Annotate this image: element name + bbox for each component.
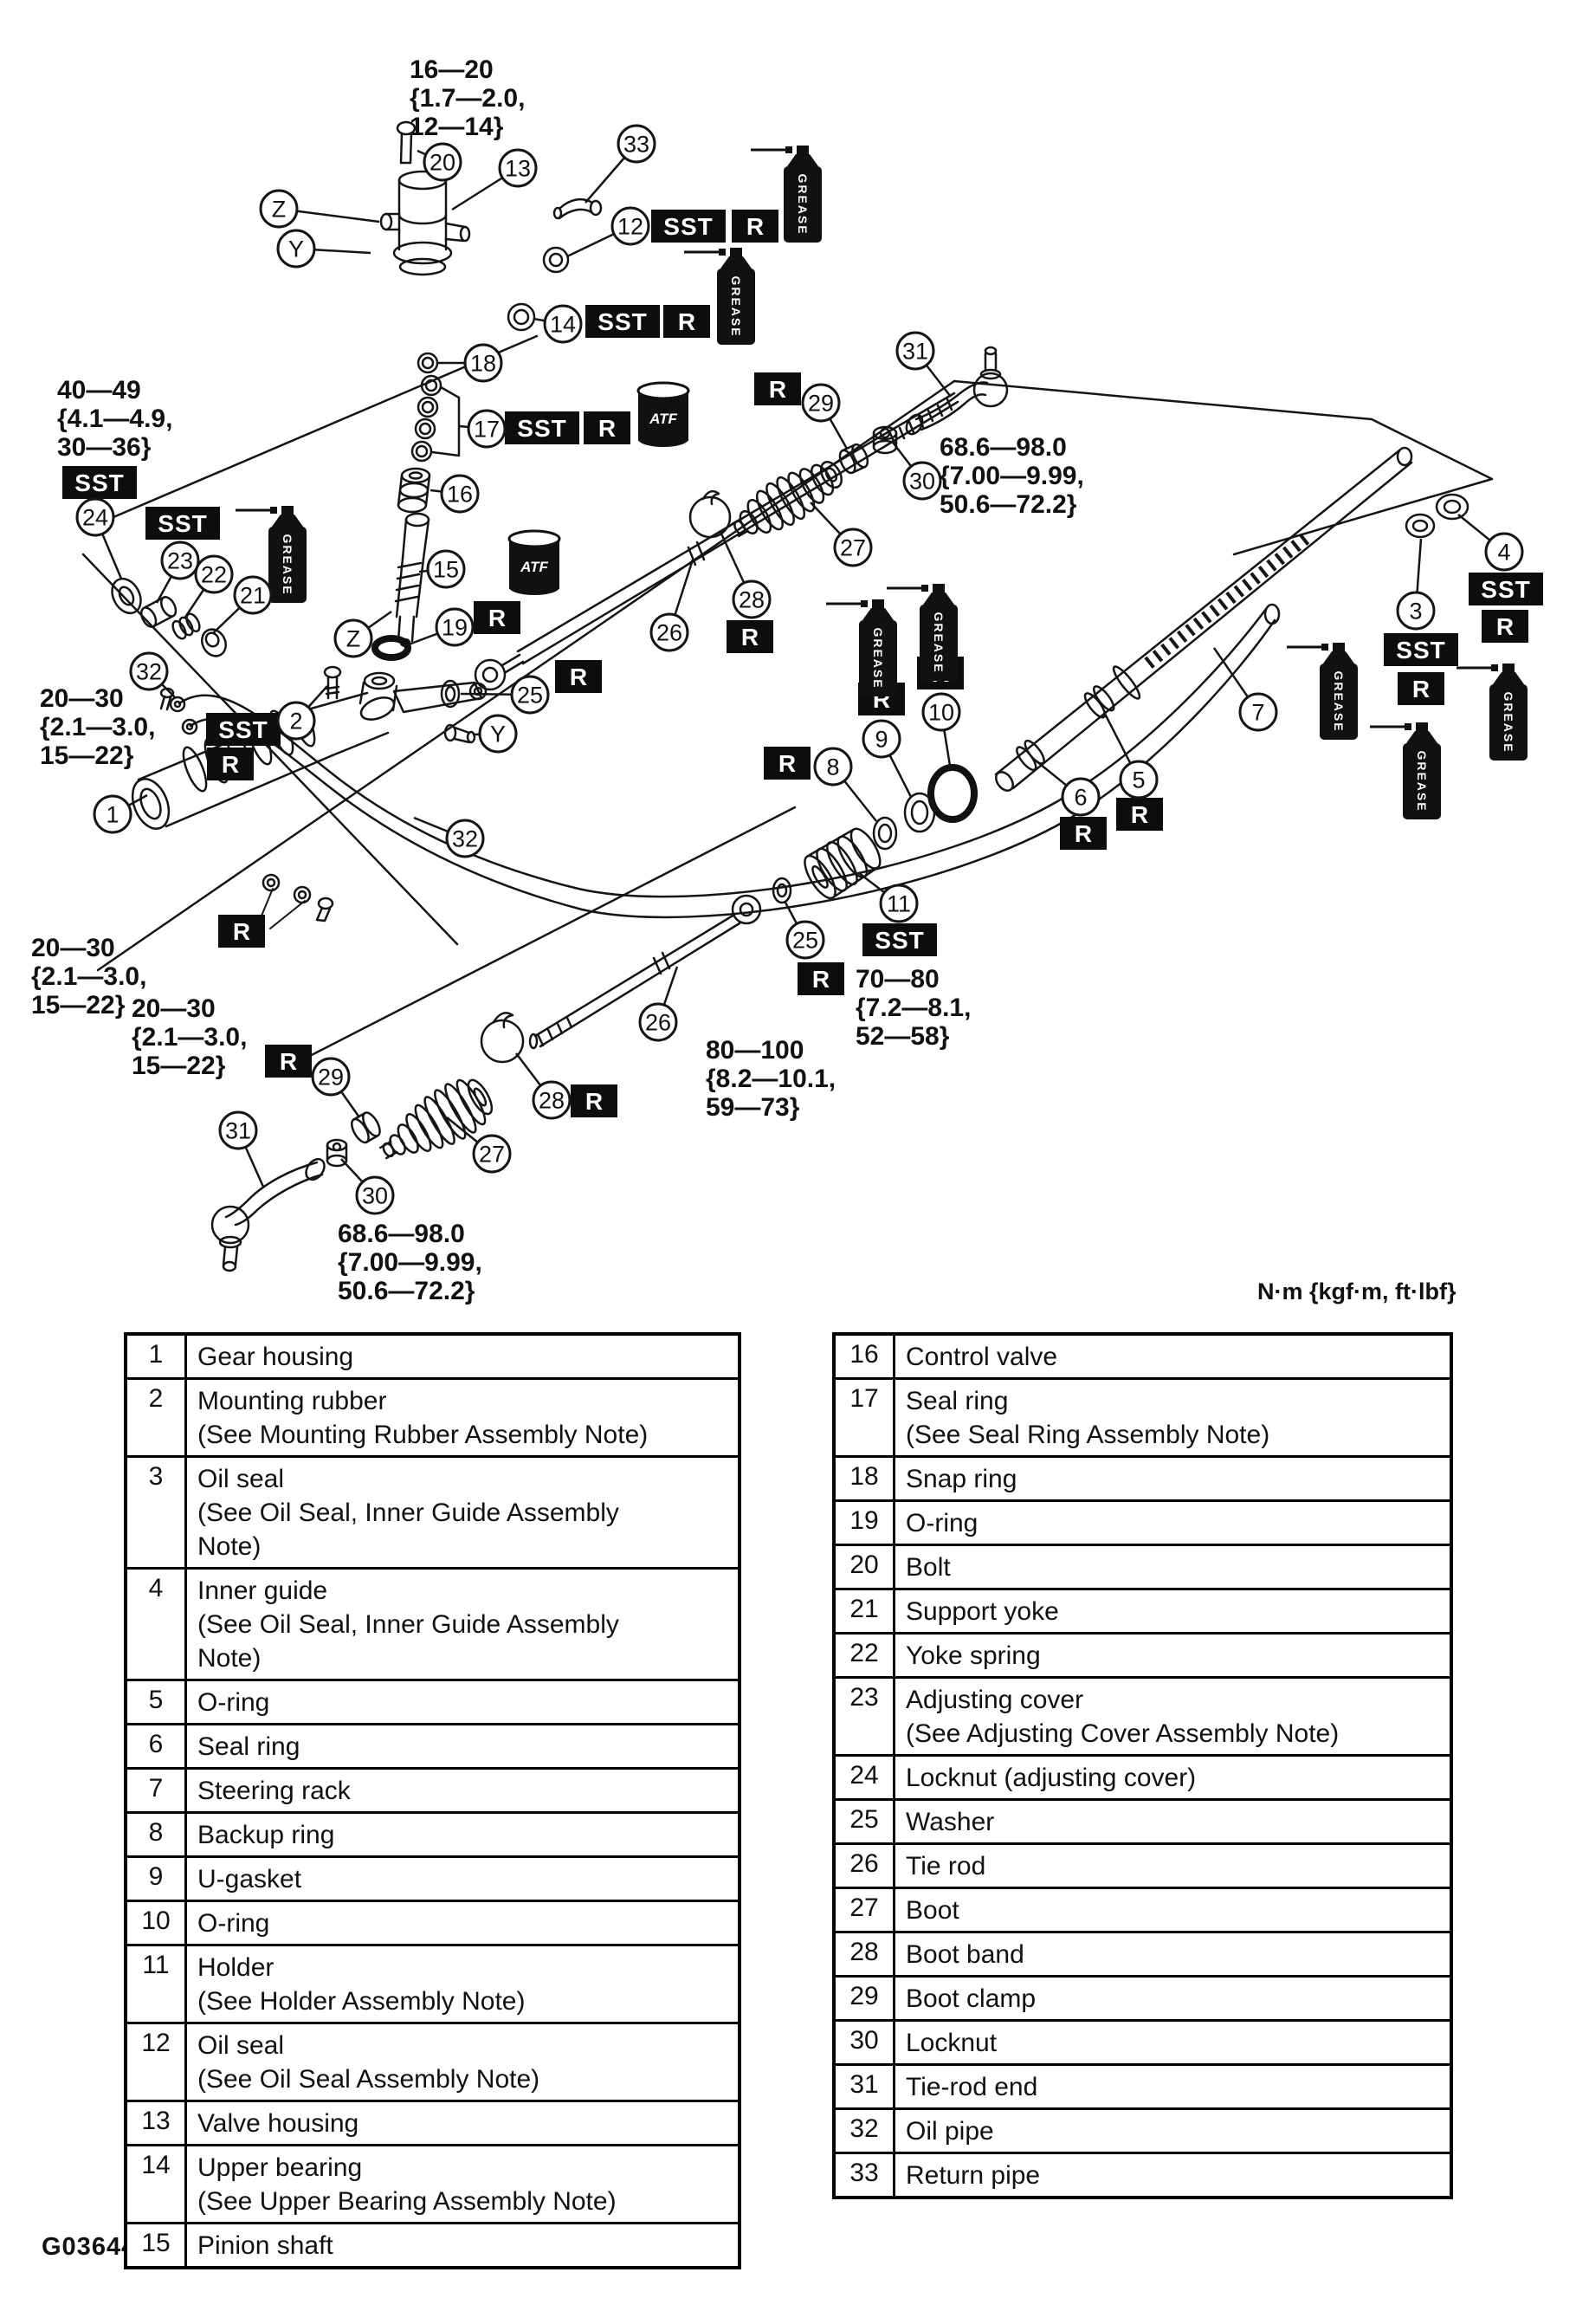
grease-bottle-icon: GREASE [1370,722,1441,819]
table-row: 9U-gasket [127,1855,738,1900]
replace-badge: R [571,1084,617,1117]
callout-12: 12 [612,208,649,244]
table-row: 18Snap ring [836,1455,1450,1499]
part-description: Pinion shaft [187,2224,738,2266]
svg-text:{2.1—3.0,: {2.1—3.0, [31,962,146,991]
part-description: Steering rack [187,1770,738,1811]
part-number: 19 [836,1502,895,1544]
table-row: 26Tie rod [836,1842,1450,1887]
svg-text:R: R [746,213,764,240]
part-number: 14 [127,2146,187,2222]
svg-text:GREASE: GREASE [281,534,294,595]
svg-text:Y: Y [288,236,304,262]
svg-text:15: 15 [433,557,459,583]
table-row: 17Seal ring(See Seal Ring Assembly Note) [836,1377,1450,1455]
callout-2: 2 [278,702,314,739]
parts-table-left: 1Gear housing2Mounting rubber(See Mounti… [124,1332,741,2269]
valve-housing-art [381,122,601,330]
replace-badge: R [207,748,254,780]
svg-text:R: R [598,415,616,442]
part-description: Oil seal(See Oil Seal, Inner Guide Assem… [187,1458,738,1567]
torque-spec: 20—30{2.1—3.0,15—22} [132,994,247,1080]
sst-badge: SST [1384,633,1458,666]
part-number: 23 [836,1679,895,1754]
svg-text:9: 9 [875,727,888,753]
part-number: 28 [836,1933,895,1975]
svg-text:ATF: ATF [520,559,548,575]
part-description: Washer [895,1801,1450,1842]
svg-text:20—30: 20—30 [132,994,216,1023]
part-description: Boot clamp [895,1978,1450,2019]
grease-bottle-icon: GREASE [826,599,897,696]
replace-badge: R [727,620,773,653]
oil-pipe-art [161,605,1279,929]
table-row: 30Locknut [836,2019,1450,2063]
svg-text:27: 27 [479,1142,505,1168]
callout-28: 28 [533,1082,570,1118]
callout-4: 4 [1486,534,1522,570]
callout-Y: Y [278,230,314,267]
svg-text:{4.1—4.9,: {4.1—4.9, [57,405,172,433]
svg-text:GREASE: GREASE [1415,750,1429,812]
pinion-shaft-art [375,514,429,657]
part-number: 16 [836,1336,895,1377]
svg-text:28: 28 [539,1088,565,1114]
svg-text:SST: SST [597,308,647,335]
callout-6: 6 [1063,779,1099,815]
part-description: Yoke spring [895,1635,1450,1676]
part-description: Tie rod [895,1845,1450,1887]
callout-18: 18 [465,345,501,381]
atf-can-icon: ATF [638,383,688,447]
svg-text:50.6—72.2}: 50.6—72.2} [338,1277,475,1305]
svg-text:11: 11 [887,891,911,917]
callout-15: 15 [428,551,464,587]
callout-Y: Y [480,715,516,752]
callout-3: 3 [1398,592,1434,629]
callout-31: 31 [897,333,933,369]
svg-text:7: 7 [1251,700,1264,726]
svg-text:22: 22 [201,562,227,588]
part-number: 11 [127,1946,187,2022]
sst-badge: SST [651,210,726,243]
part-number: 2 [127,1380,187,1455]
table-row: 33Return pipe [836,2152,1450,2196]
sst-badge: SST [1469,573,1543,605]
part-number: 29 [836,1978,895,2019]
svg-text:10: 10 [928,700,954,726]
replace-badge: R [1116,798,1163,831]
svg-text:14: 14 [550,312,576,338]
part-number: 31 [836,2066,895,2107]
part-number: 4 [127,1570,187,1679]
svg-text:{7.00—9.99,: {7.00—9.99, [338,1248,482,1277]
svg-text:ATF: ATF [649,411,677,427]
table-row: 5O-ring [127,1679,738,1723]
torque-spec: 68.6—98.0{7.00—9.99,50.6—72.2} [338,1220,482,1305]
callout-22: 22 [196,556,232,592]
manual-page: 16—20{1.7—2.0,12—14}40—49{4.1—4.9,30—36}… [0,0,1576,2324]
svg-text:3: 3 [1409,599,1422,625]
svg-text:R: R [233,918,250,945]
callout-25: 25 [787,922,824,958]
svg-text:16: 16 [447,482,473,508]
svg-text:R: R [769,376,786,403]
table-row: 14Upper bearing(See Upper Bearing Assemb… [127,2144,738,2222]
part-number: 24 [836,1757,895,1798]
part-description: U-gasket [187,1858,738,1900]
table-row: 12Oil seal(See Oil Seal Assembly Note) [127,2022,738,2100]
replace-badge: R [218,915,265,948]
svg-text:16—20: 16—20 [410,55,494,84]
part-description: Control valve [895,1336,1450,1377]
svg-text:R: R [778,750,796,777]
svg-text:30: 30 [909,469,935,495]
part-description: Support yoke [895,1590,1450,1632]
replace-badge: R [584,411,630,444]
replace-badge: R [754,372,801,405]
svg-text:R: R [1496,613,1514,640]
table-row: 20Bolt [836,1544,1450,1588]
part-description: Seal ring(See Seal Ring Assembly Note) [895,1380,1450,1455]
svg-text:{2.1—3.0,: {2.1—3.0, [132,1023,247,1052]
part-number: 30 [836,2022,895,2063]
sst-badge: SST [62,466,137,499]
svg-text:30: 30 [362,1183,388,1209]
svg-text:28: 28 [739,587,765,613]
svg-text:68.6—98.0: 68.6—98.0 [338,1220,465,1248]
part-number: 17 [836,1380,895,1455]
svg-text:SST: SST [663,213,713,240]
part-number: 18 [836,1458,895,1499]
part-number: 3 [127,1458,187,1567]
svg-text:SST: SST [218,716,268,743]
part-description: Snap ring [895,1458,1450,1499]
callout-Z: Z [261,191,297,227]
svg-text:4: 4 [1497,540,1510,566]
callout-8: 8 [815,748,851,785]
svg-text:31: 31 [225,1118,251,1144]
table-row: 23Adjusting cover(See Adjusting Cover As… [836,1676,1450,1754]
part-number: 15 [127,2224,187,2266]
table-row: 22Yoke spring [836,1632,1450,1676]
torque-spec: 68.6—98.0{7.00—9.99,50.6—72.2} [940,433,1084,519]
callout-20: 20 [424,144,461,180]
svg-text:6: 6 [1074,785,1087,811]
part-description: O-ring [187,1681,738,1723]
callout-10: 10 [923,694,959,730]
part-description: Valve housing [187,2102,738,2144]
svg-text:R: R [570,664,587,690]
svg-text:68.6—98.0: 68.6—98.0 [940,433,1067,462]
callout-5: 5 [1121,761,1157,798]
svg-text:52—58}: 52—58} [856,1022,950,1051]
rack-end-seal-art [773,767,974,903]
svg-text:R: R [741,624,759,651]
svg-text:SST: SST [517,415,566,442]
callout-26: 26 [640,1004,676,1040]
table-row: 24Locknut (adjusting cover) [836,1754,1450,1798]
sst-badge: SST [585,305,660,338]
svg-text:R: R [1131,801,1148,828]
part-number: 6 [127,1725,187,1767]
part-description: Gear housing [187,1336,738,1377]
svg-text:15—22}: 15—22} [40,741,134,770]
part-number: 32 [836,2110,895,2152]
part-description: Tie-rod end [895,2066,1450,2107]
part-number: 1 [127,1336,187,1377]
part-number: 10 [127,1902,187,1944]
sst-badge: SST [862,923,937,956]
replace-badge: R [555,660,602,693]
atf-can-icon: ATF [509,531,559,595]
gear-housing-art [126,667,486,834]
part-description: Bolt [895,1546,1450,1588]
svg-text:12: 12 [617,214,643,240]
part-description: Upper bearing(See Upper Bearing Assembly… [187,2146,738,2222]
callout-19: 19 [436,609,473,645]
callout-17: 17 [468,411,505,447]
svg-text:Y: Y [490,722,506,748]
part-description: Seal ring [187,1725,738,1767]
svg-text:24: 24 [82,505,108,531]
svg-text:23: 23 [167,548,193,574]
replace-badge: R [474,601,520,634]
svg-text:17: 17 [474,417,500,443]
table-row: 4Inner guide(See Oil Seal, Inner Guide A… [127,1567,738,1679]
part-description: Return pipe [895,2154,1450,2196]
svg-text:R: R [488,605,506,631]
svg-text:R: R [222,751,239,778]
svg-text:R: R [1075,820,1092,847]
part-description: Adjusting cover(See Adjusting Cover Asse… [895,1679,1450,1754]
svg-text:{1.7—2.0,: {1.7—2.0, [410,84,525,113]
table-row: 15Pinion shaft [127,2222,738,2266]
svg-text:R: R [280,1048,297,1075]
callout-31: 31 [220,1112,256,1149]
part-number: 20 [836,1546,895,1588]
svg-text:{7.00—9.99,: {7.00—9.99, [940,462,1084,490]
svg-text:2: 2 [289,709,302,735]
svg-text:GREASE: GREASE [871,627,885,689]
parts-table-right: 16Control valve17Seal ring(See Seal Ring… [832,1332,1453,2199]
replace-badge: R [798,962,844,995]
replace-badge: R [1482,610,1528,643]
svg-text:26: 26 [645,1010,671,1036]
svg-text:{8.2—10.1,: {8.2—10.1, [706,1065,836,1093]
part-number: 22 [836,1635,895,1676]
svg-text:20—30: 20—30 [31,934,115,962]
svg-text:12—14}: 12—14} [410,113,504,141]
svg-text:29: 29 [318,1065,344,1091]
table-row: 2Mounting rubber(See Mounting Rubber Ass… [127,1377,738,1455]
svg-text:8: 8 [826,754,839,780]
table-row: 7Steering rack [127,1767,738,1811]
part-description: Backup ring [187,1814,738,1855]
replace-badge: R [265,1045,312,1078]
svg-text:13: 13 [505,156,531,182]
torque-spec: 16—20{1.7—2.0,12—14} [410,55,525,141]
torque-spec: 20—30{2.1—3.0,15—22} [31,934,146,1020]
sst-badge: SST [145,507,220,540]
svg-text:{2.1—3.0,: {2.1—3.0, [40,713,155,741]
svg-text:R: R [678,308,695,335]
torque-spec: 40—49{4.1—4.9,30—36} [57,376,172,462]
part-description: Holder(See Holder Assembly Note) [187,1946,738,2022]
part-description: Boot [895,1889,1450,1931]
part-number: 8 [127,1814,187,1855]
table-row: 19O-ring [836,1499,1450,1544]
svg-text:1: 1 [106,802,119,828]
svg-text:70—80: 70—80 [856,965,940,994]
svg-text:30—36}: 30—36} [57,433,152,462]
table-row: 31Tie-rod end [836,2063,1450,2107]
svg-text:{7.2—8.1,: {7.2—8.1, [856,994,971,1022]
svg-text:50.6—72.2}: 50.6—72.2} [940,490,1077,519]
grease-bottle-icon: GREASE [1287,643,1358,740]
table-row: 13Valve housing [127,2100,738,2144]
grease-bottle-icon: GREASE [1457,664,1528,761]
sst-badge: SST [206,713,281,746]
part-description: Oil seal(See Oil Seal Assembly Note) [187,2024,738,2100]
table-row: 16Control valve [836,1336,1450,1377]
svg-text:20—30: 20—30 [40,684,124,713]
callout-27: 27 [474,1136,510,1172]
callout-33: 33 [618,126,655,162]
legend-boxes: SSTSSTSSTSSTSSTSSTSSTSSTSSTRRRRRRRRRRRRR… [62,146,1543,1117]
part-number: 13 [127,2102,187,2144]
callout-24: 24 [77,499,113,535]
callout-29: 29 [803,385,839,421]
svg-text:26: 26 [656,620,682,646]
svg-text:Z: Z [272,197,287,223]
table-row: 29Boot clamp [836,1975,1450,2019]
replace-badge: R [732,210,778,243]
replace-badge: R [764,747,811,780]
svg-text:31: 31 [902,339,928,365]
part-number: 33 [836,2154,895,2196]
svg-text:25: 25 [792,928,818,954]
svg-text:33: 33 [623,132,649,158]
svg-text:29: 29 [808,391,834,417]
svg-text:32: 32 [452,826,478,852]
replace-badge: R [1060,817,1107,850]
table-row: 25Washer [836,1798,1450,1842]
svg-text:SST: SST [1396,637,1445,664]
table-row: 8Backup ring [127,1811,738,1855]
construction-lines [83,336,1492,1058]
svg-text:R: R [812,966,830,993]
svg-text:27: 27 [840,535,866,561]
part-number: 5 [127,1681,187,1723]
table-row: 6Seal ring [127,1723,738,1767]
callout-32: 32 [447,820,483,857]
callout-1: 1 [94,796,131,832]
grease-bottle-icon: GREASE [887,584,958,681]
callout-11: 11 [881,885,917,922]
part-number: 26 [836,1845,895,1887]
table-row: 10O-ring [127,1900,738,1944]
part-number: 9 [127,1858,187,1900]
table-row: 32Oil pipe [836,2107,1450,2152]
svg-text:15—22}: 15—22} [132,1052,226,1080]
callout-14: 14 [545,306,581,342]
svg-text:5: 5 [1132,767,1145,793]
torque-spec: 70—80{7.2—8.1,52—58} [856,965,971,1051]
callout-9: 9 [863,721,900,757]
svg-text:80—100: 80—100 [706,1036,804,1065]
part-description: O-ring [187,1902,738,1944]
callout-13: 13 [500,150,536,186]
torque-unit-note: N·m {kgf·m, ft·lbf} [1257,1279,1456,1305]
part-description: Oil pipe [895,2110,1450,2152]
part-description: Mounting rubber(See Mounting Rubber Asse… [187,1380,738,1455]
svg-text:GREASE: GREASE [729,275,743,337]
svg-text:Z: Z [346,626,361,652]
svg-text:GREASE: GREASE [796,173,810,235]
lower-tie-rod-art [212,896,760,1271]
svg-text:19: 19 [442,615,468,641]
part-number: 25 [836,1801,895,1842]
callout-28: 28 [733,581,770,618]
svg-text:32: 32 [136,659,162,685]
callout-30: 30 [904,463,940,499]
part-description: Locknut [895,2022,1450,2063]
callout-16: 16 [442,476,478,512]
svg-text:25: 25 [517,683,543,709]
svg-text:GREASE: GREASE [1502,691,1515,753]
svg-text:SST: SST [158,510,207,537]
part-number: 21 [836,1590,895,1632]
callout-26: 26 [651,614,688,651]
part-description: Locknut (adjusting cover) [895,1757,1450,1798]
svg-text:R: R [585,1088,603,1115]
svg-text:SST: SST [1481,576,1530,603]
part-number: 27 [836,1889,895,1931]
part-description: Inner guide(See Oil Seal, Inner Guide As… [187,1570,738,1679]
table-row: 21Support yoke [836,1588,1450,1632]
callout-32: 32 [131,653,167,689]
callout-Z: Z [335,620,371,657]
callout-7: 7 [1240,694,1276,730]
svg-text:15—22}: 15—22} [31,991,126,1020]
part-number: 12 [127,2024,187,2100]
table-row: 3Oil seal(See Oil Seal, Inner Guide Asse… [127,1455,738,1567]
table-row: 11Holder(See Holder Assembly Note) [127,1944,738,2022]
table-row: 28Boot band [836,1931,1450,1975]
callout-25: 25 [512,676,548,713]
svg-text:40—49: 40—49 [57,376,141,405]
torque-spec: 20—30{2.1—3.0,15—22} [40,684,155,770]
svg-text:SST: SST [875,927,924,954]
replace-badge: R [663,305,710,338]
callout-23: 23 [162,542,198,579]
table-row: 1Gear housing [127,1336,738,1377]
svg-text:20: 20 [430,150,455,176]
part-description: Boot band [895,1933,1450,1975]
svg-text:SST: SST [74,469,124,496]
sst-badge: SST [505,411,579,444]
part-number: 7 [127,1770,187,1811]
callout-27: 27 [835,529,871,566]
svg-text:R: R [1412,676,1430,702]
table-row: 27Boot [836,1887,1450,1931]
svg-text:18: 18 [470,351,496,377]
torque-spec: 80—100{8.2—10.1,59—73} [706,1036,836,1122]
svg-text:GREASE: GREASE [1332,670,1346,732]
callout-29: 29 [313,1058,349,1095]
callout-30: 30 [357,1177,393,1214]
